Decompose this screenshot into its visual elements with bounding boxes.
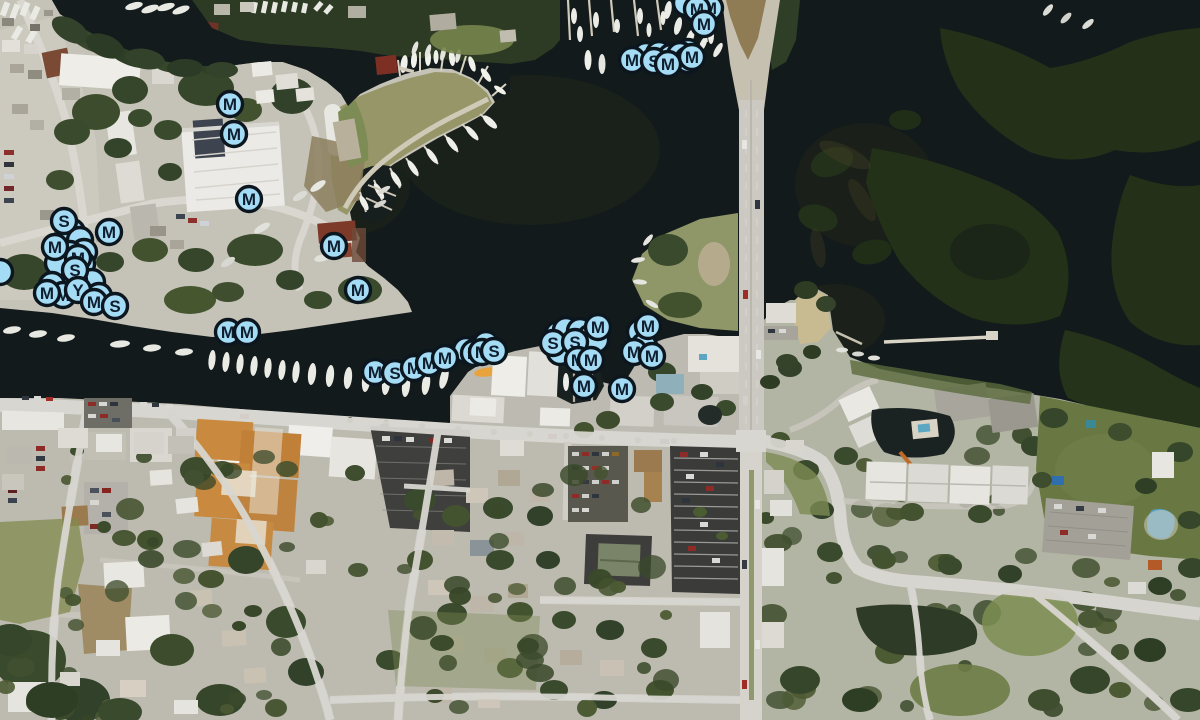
svg-text:S: S — [547, 334, 558, 353]
svg-text:M: M — [697, 15, 711, 34]
svg-text:S: S — [389, 364, 400, 383]
svg-text:M: M — [223, 95, 237, 114]
svg-text:M: M — [227, 125, 241, 144]
svg-text:M: M — [240, 323, 254, 342]
svg-text:M: M — [368, 363, 382, 382]
svg-text:M: M — [645, 347, 659, 366]
svg-text:M: M — [327, 237, 341, 256]
svg-text:M: M — [685, 48, 699, 67]
svg-text:M: M — [87, 293, 101, 312]
svg-text:S: S — [109, 297, 120, 316]
svg-text:S: S — [488, 342, 499, 361]
svg-text:M: M — [591, 318, 605, 337]
svg-text:M: M — [40, 284, 54, 303]
svg-text:M: M — [625, 51, 639, 70]
svg-text:M: M — [102, 223, 116, 242]
svg-text:M: M — [242, 190, 256, 209]
svg-text:M: M — [641, 317, 655, 336]
svg-text:M: M — [438, 349, 452, 368]
svg-text:M: M — [661, 55, 675, 74]
svg-text:M: M — [48, 238, 62, 257]
svg-text:M: M — [584, 351, 598, 370]
svg-text:S: S — [58, 212, 69, 231]
svg-text:M: M — [615, 380, 629, 399]
svg-text:M: M — [351, 281, 365, 300]
svg-text:M: M — [577, 377, 591, 396]
